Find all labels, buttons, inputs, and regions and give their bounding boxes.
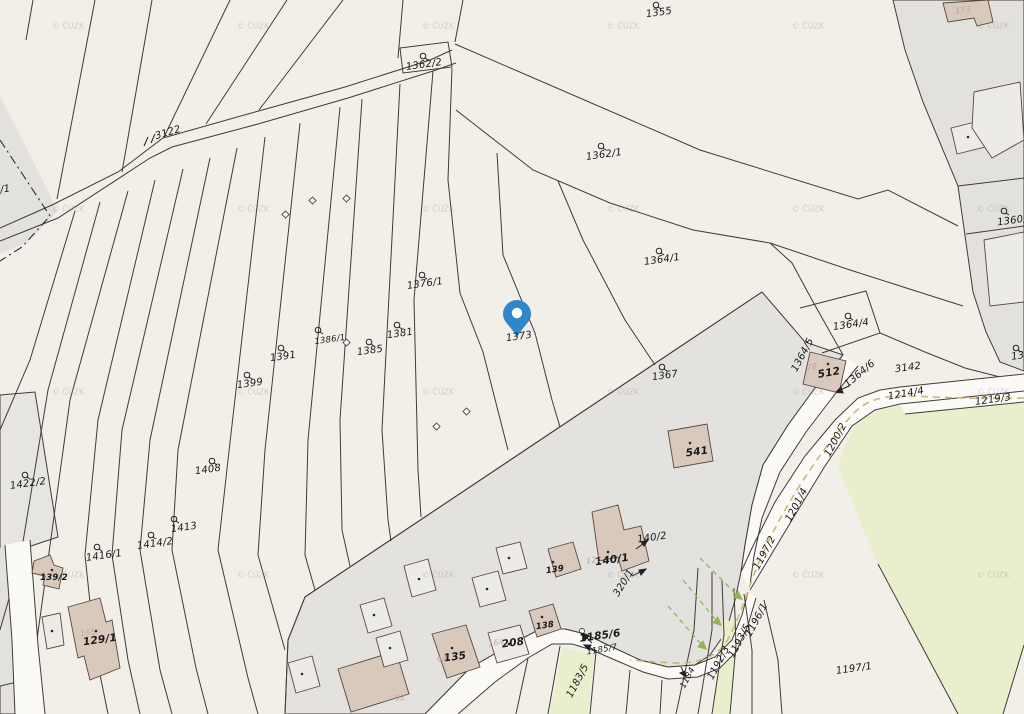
location-pin-icon[interactable]	[503, 300, 531, 337]
green-strip-1183-5	[550, 648, 594, 714]
road-tick-marks	[144, 134, 155, 146]
gray-wedge-topleft	[0, 96, 57, 254]
green-parcel-large	[838, 393, 1024, 714]
map-canvas[interactable]	[0, 0, 1024, 714]
gray-parcel-1422-2	[0, 392, 58, 555]
cadastral-map-view: © ČÚZK© ČÚZK© ČÚZK© ČÚZK© ČÚZK© ČÚZK© ČÚ…	[0, 0, 1024, 714]
